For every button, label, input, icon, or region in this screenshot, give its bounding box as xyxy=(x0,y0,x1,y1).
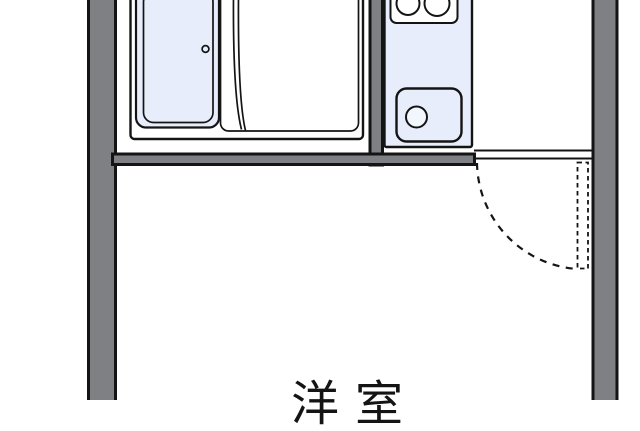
bathtub xyxy=(136,0,219,128)
wall-bath-kitchen-divider xyxy=(370,0,383,165)
wall-horizontal-band xyxy=(113,154,475,165)
sink-drain xyxy=(406,107,427,128)
room-label-western-room: 洋室 xyxy=(291,381,419,429)
floorplan-canvas: 洋室 xyxy=(0,0,640,400)
stove-burner-left xyxy=(397,0,420,15)
wall-right xyxy=(593,0,617,400)
door-leaf-dashed xyxy=(578,163,589,269)
stove-burner-right xyxy=(425,0,450,16)
wall-left xyxy=(89,0,116,400)
door-swing-arc xyxy=(477,163,577,269)
